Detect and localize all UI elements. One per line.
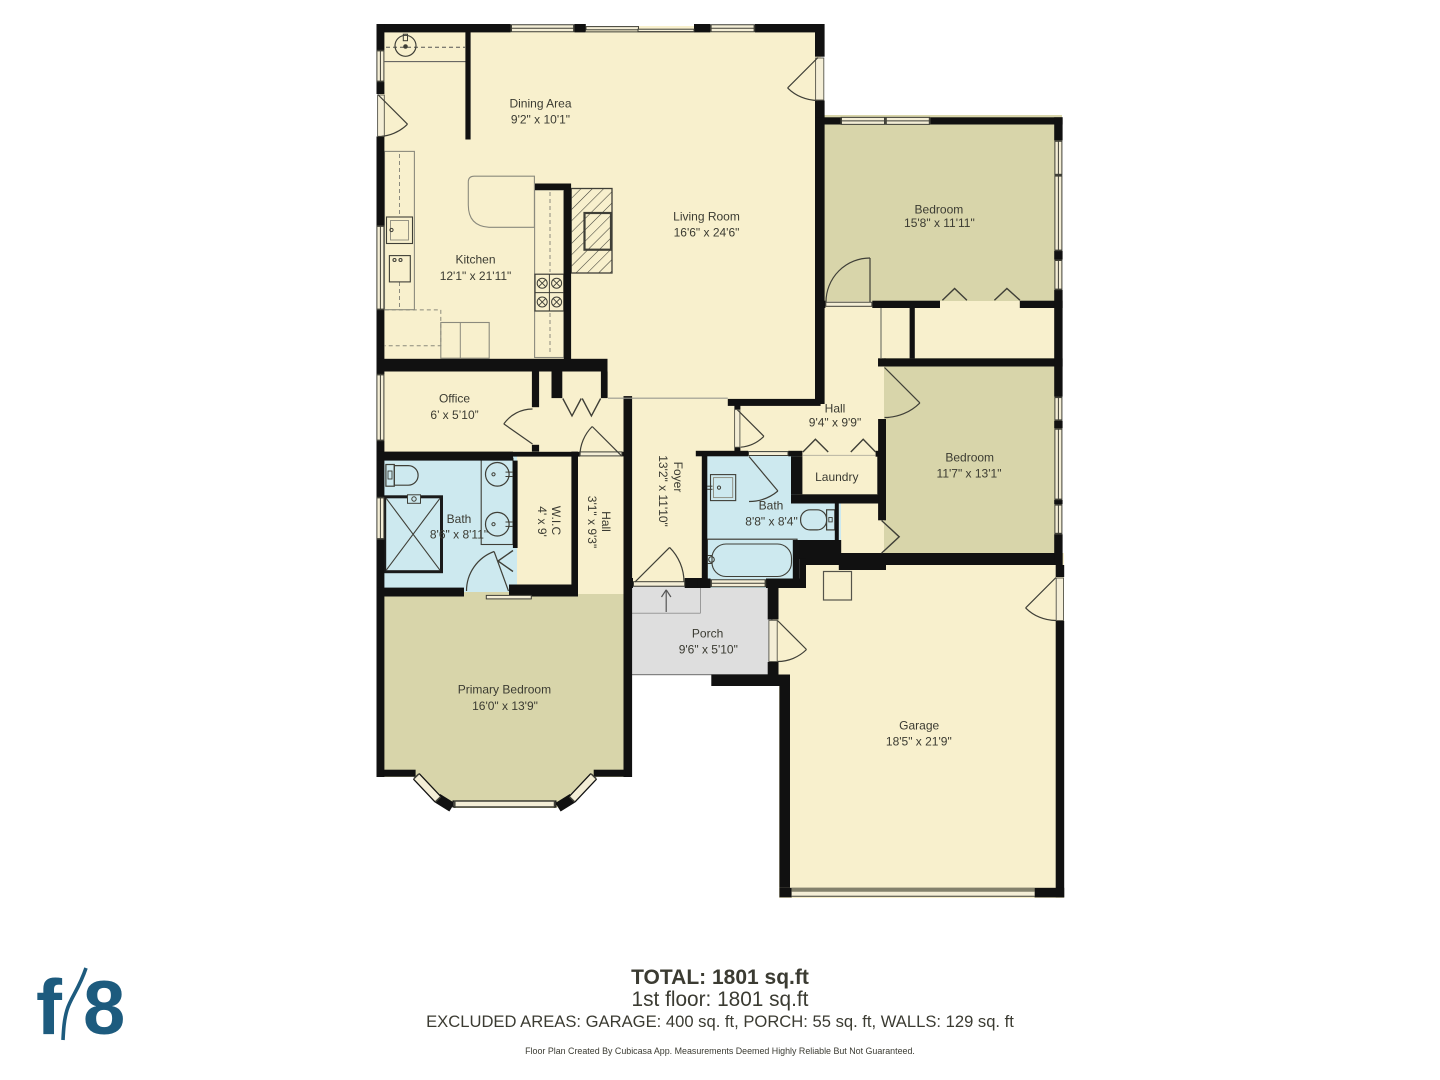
svg-text:9'6" x 5'10": 9'6" x 5'10" (679, 643, 738, 657)
svg-text:16'0" x 13'9": 16'0" x 13'9" (472, 699, 538, 713)
svg-text:12'1" x 21'11": 12'1" x 21'11" (440, 269, 512, 283)
svg-text:13'2" x 11'10": 13'2" x 11'10" (656, 455, 670, 527)
svg-text:18'5" x 21'9": 18'5" x 21'9" (886, 735, 952, 749)
svg-text:Floor Plan Created By Cubicasa: Floor Plan Created By Cubicasa App. Meas… (525, 1046, 915, 1056)
svg-text:9'2" x 10'1": 9'2" x 10'1" (511, 113, 570, 127)
svg-text:f: f (36, 963, 63, 1051)
svg-text:Primary Bedroom: Primary Bedroom (458, 683, 551, 697)
svg-text:4' x 9': 4' x 9' (535, 506, 549, 537)
svg-text:Porch: Porch (692, 627, 723, 641)
svg-text:EXCLUDED AREAS: GARAGE: 400 sq: EXCLUDED AREAS: GARAGE: 400 sq. ft, PORC… (426, 1012, 1014, 1031)
svg-text:11'7" x 13'1": 11'7" x 13'1" (937, 467, 1002, 481)
svg-text:9'4" x 9'9": 9'4" x 9'9" (809, 416, 861, 430)
svg-text:8: 8 (83, 966, 125, 1051)
svg-text:Living Room: Living Room (673, 210, 740, 224)
svg-text:8'6" x 8'11": 8'6" x 8'11" (430, 528, 488, 542)
svg-text:Hall: Hall (825, 402, 846, 416)
svg-text:6’ x 5’10”: 6’ x 5’10” (430, 408, 478, 422)
svg-text:3'1" x 9'3": 3'1" x 9'3" (585, 496, 599, 548)
svg-text:TOTAL: 1801 sq.ft: TOTAL: 1801 sq.ft (631, 966, 809, 989)
svg-text:8'8" x 8'4": 8'8" x 8'4" (745, 515, 797, 529)
svg-text:Office: Office (439, 392, 470, 406)
svg-text:Garage: Garage (899, 719, 939, 733)
svg-text:Bedroom: Bedroom (915, 203, 964, 217)
svg-text:16'6" x 24'6": 16'6" x 24'6" (674, 226, 740, 240)
svg-text:Bath: Bath (759, 499, 784, 513)
svg-text:1st floor: 1801 sq.ft: 1st floor: 1801 sq.ft (632, 988, 809, 1011)
svg-text:Dining Area: Dining Area (509, 97, 571, 111)
svg-text:Bedroom: Bedroom (945, 451, 994, 465)
svg-text:Laundry: Laundry (815, 470, 858, 484)
svg-text:15'8" x 11'11": 15'8" x 11'11" (904, 216, 975, 230)
svg-text:Foyer: Foyer (671, 462, 685, 493)
svg-text:Hall: Hall (599, 511, 613, 532)
svg-text:Bath: Bath (447, 512, 472, 526)
svg-text:W.I.C: W.I.C (549, 506, 563, 536)
svg-text:Kitchen: Kitchen (455, 253, 495, 267)
